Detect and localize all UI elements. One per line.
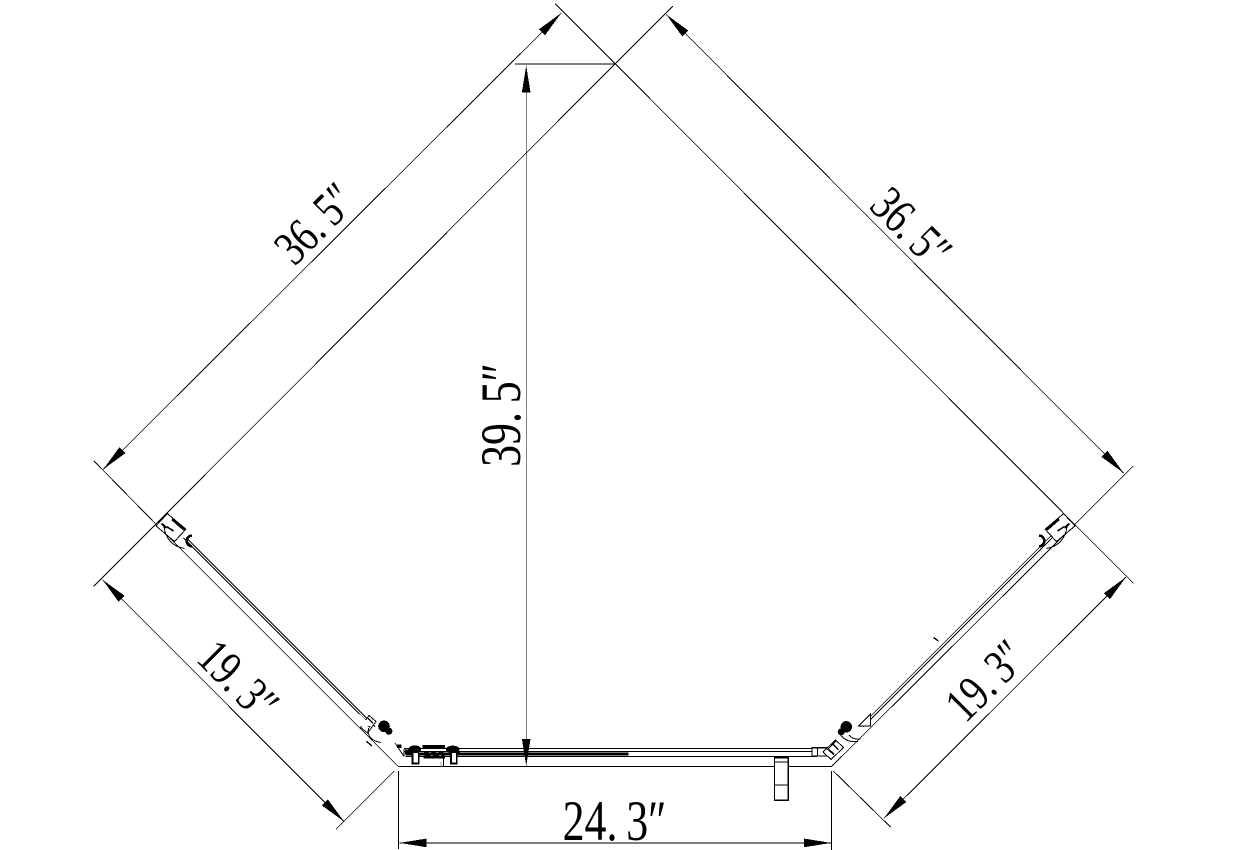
svg-text:39. 5″: 39. 5″ [470,363,533,467]
svg-text:19. 3″: 19. 3″ [934,629,1037,732]
svg-text:36. 5″: 36. 5″ [264,172,367,275]
svg-text:36. 5″: 36. 5″ [860,176,963,279]
svg-text:19. 3″: 19. 3″ [187,629,290,732]
svg-text:24. 3″: 24. 3″ [563,790,667,850]
